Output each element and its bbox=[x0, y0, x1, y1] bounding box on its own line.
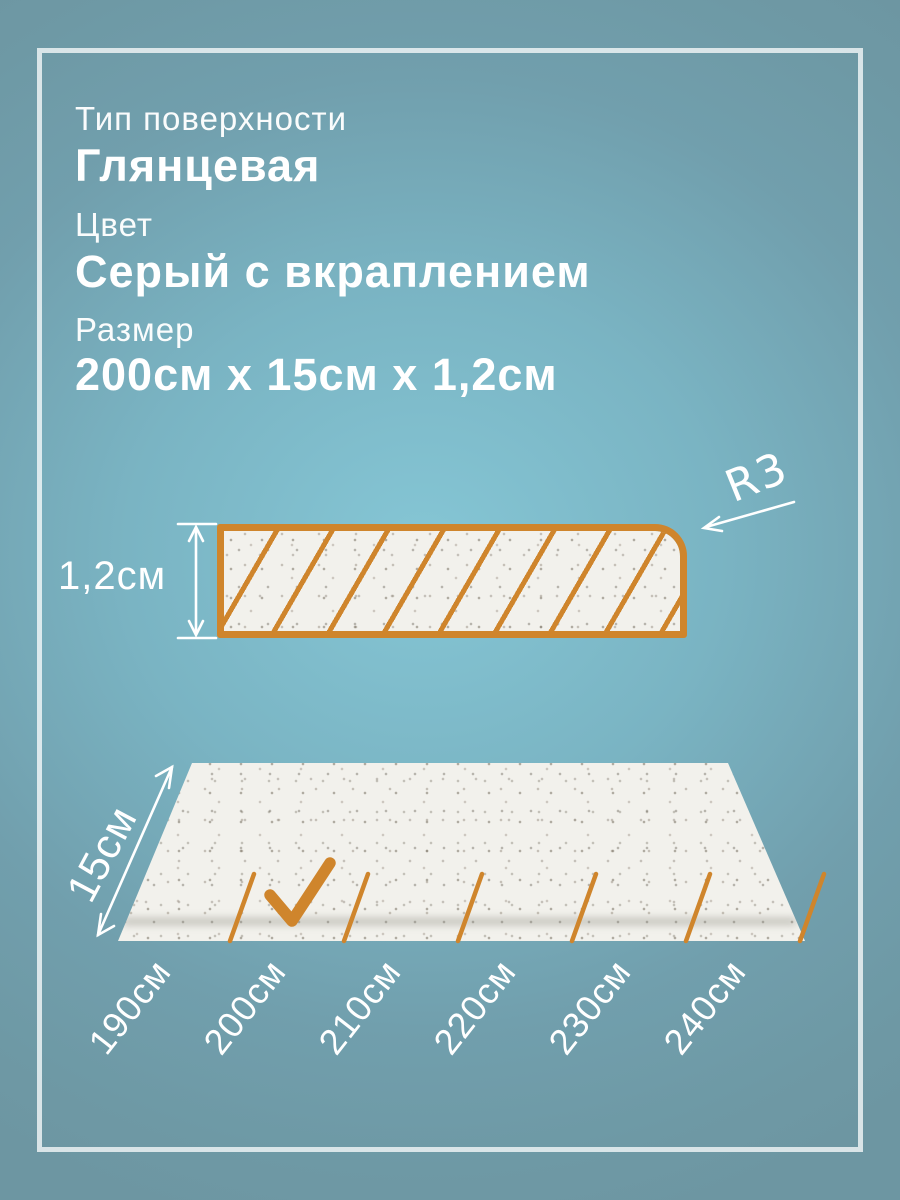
size-label: Размер bbox=[75, 311, 194, 349]
length-option-190: 190см bbox=[73, 943, 186, 1071]
color-value: Серый с вкраплением bbox=[75, 247, 591, 297]
length-option-240: 240см bbox=[648, 943, 761, 1071]
width-dimension-arrow-icon bbox=[80, 755, 190, 950]
length-option-200: 200см bbox=[188, 943, 301, 1071]
surface-type-value: Глянцевая bbox=[75, 141, 320, 191]
infographic-canvas: Тип поверхности Глянцевая Цвет Серый с в… bbox=[0, 0, 900, 1200]
selected-length-checkmark-icon bbox=[255, 850, 345, 935]
thickness-dimension-arrow-icon bbox=[170, 518, 226, 644]
length-option-230: 230см bbox=[533, 943, 646, 1071]
cross-section-profile bbox=[217, 524, 687, 638]
size-value: 200см x 15см x 1,2см bbox=[75, 350, 558, 400]
length-option-220: 220см bbox=[418, 943, 531, 1071]
color-label: Цвет bbox=[75, 206, 153, 244]
thickness-dimension-label: 1,2см bbox=[58, 554, 186, 599]
surface-type-label: Тип поверхности bbox=[75, 100, 347, 138]
corner-radius-arrow-icon bbox=[692, 492, 804, 540]
length-option-210: 210см bbox=[303, 943, 416, 1071]
